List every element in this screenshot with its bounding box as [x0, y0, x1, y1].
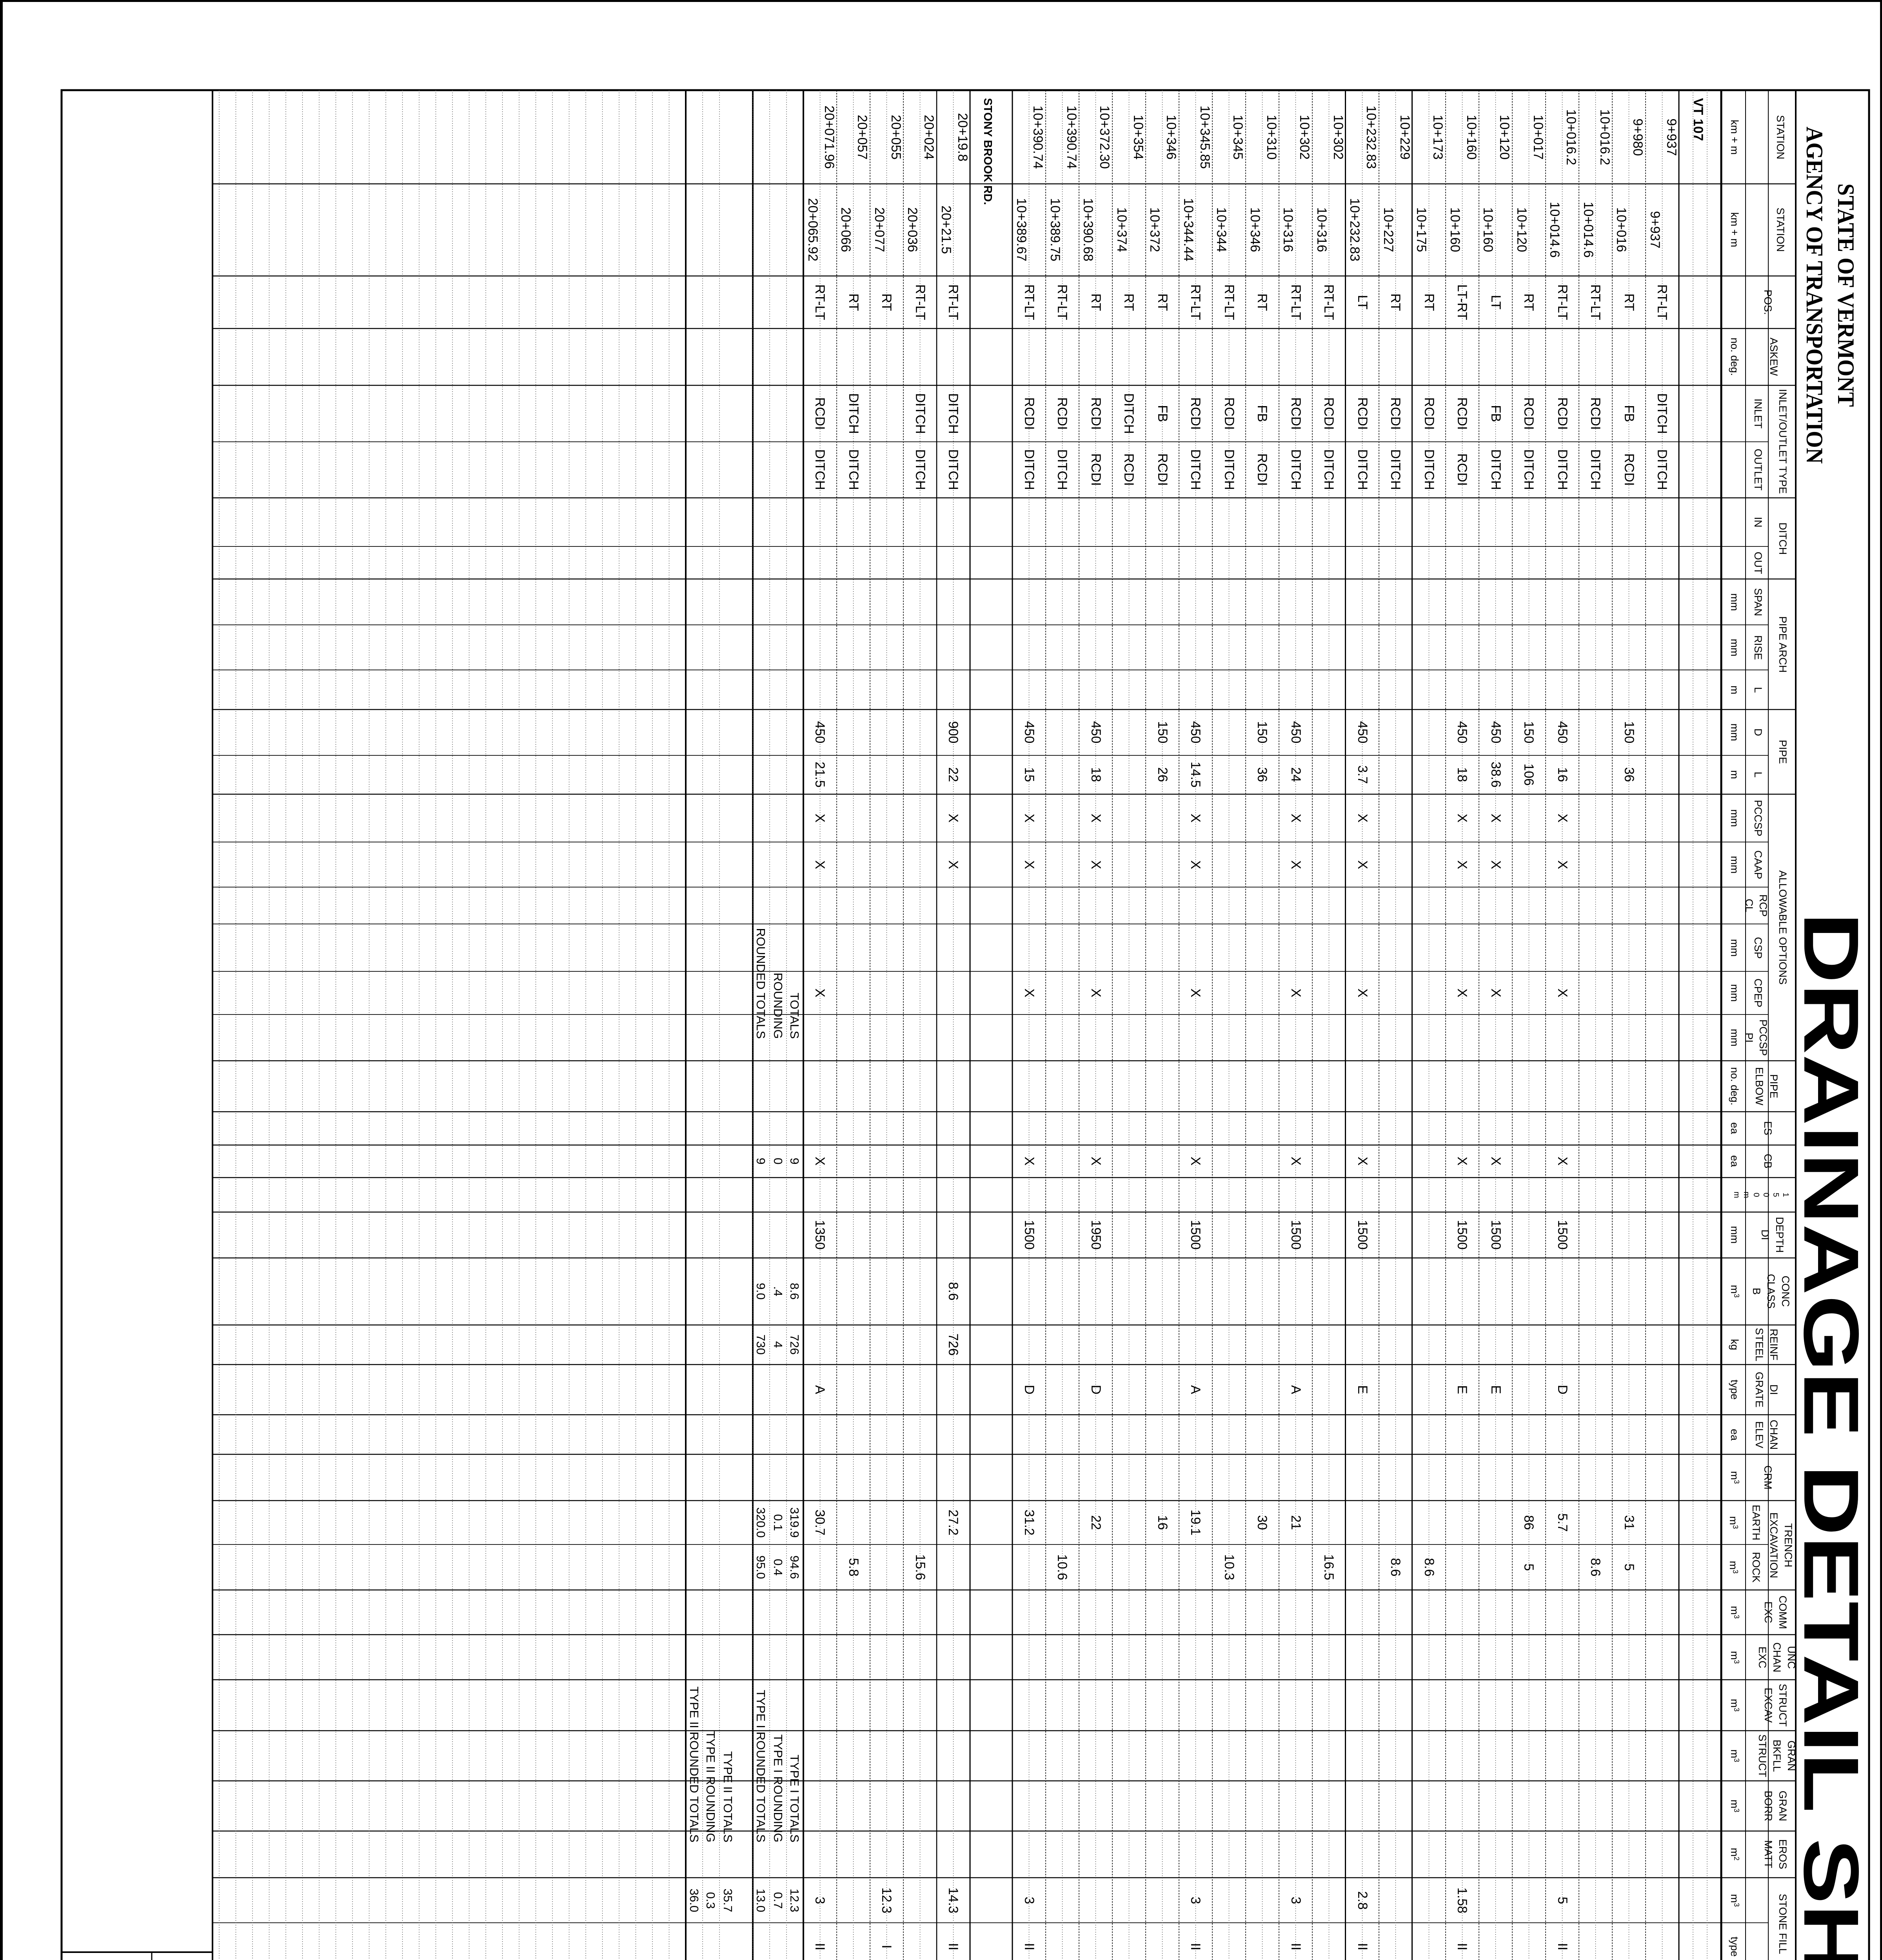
svg-text:A: A	[812, 1385, 827, 1394]
svg-text:X: X	[1555, 1157, 1570, 1166]
svg-text:STRUCT: STRUCT	[1757, 1734, 1768, 1777]
svg-text:RCDI: RCDI	[1355, 397, 1370, 430]
svg-text:m: m	[1732, 1192, 1741, 1198]
svg-text:CLASS: CLASS	[1765, 1274, 1777, 1309]
svg-text:X: X	[1488, 989, 1503, 998]
svg-text:RT-LT: RT-LT	[1288, 284, 1303, 320]
svg-text:RCP: RCP	[1757, 894, 1769, 916]
svg-text:RT-LT: RT-LT	[946, 284, 961, 320]
svg-text:II: II	[1288, 1943, 1303, 1951]
svg-text:II: II	[1555, 1943, 1570, 1951]
svg-text:3: 3	[812, 1897, 827, 1904]
svg-text:E: E	[1355, 1385, 1370, 1394]
svg-text:RT-LT: RT-LT	[1188, 284, 1203, 320]
svg-text:SPAN: SPAN	[1752, 588, 1764, 616]
svg-text:DITCH: DITCH	[1055, 449, 1070, 490]
svg-text:X: X	[1188, 860, 1203, 869]
svg-text:86: 86	[1521, 1515, 1536, 1530]
svg-text:5: 5	[1771, 1192, 1780, 1197]
svg-text:STATION: STATION	[1775, 208, 1786, 252]
svg-text:GRAN: GRAN	[1786, 1740, 1797, 1771]
svg-text:ROCK: ROCK	[1750, 1552, 1762, 1583]
svg-text:mm: mm	[1729, 939, 1740, 957]
svg-text:730: 730	[754, 1334, 768, 1355]
svg-text:DITCH: DITCH	[846, 393, 861, 434]
svg-text:726: 726	[946, 1334, 961, 1356]
svg-text:10+310: 10+310	[1264, 115, 1279, 160]
svg-text:DEPTH: DEPTH	[1774, 1217, 1786, 1253]
svg-text:I: I	[879, 1945, 894, 1948]
svg-text:19.1: 19.1	[1188, 1510, 1203, 1535]
svg-text:10+389.75: 10+389.75	[1048, 198, 1063, 261]
svg-text:RCDI: RCDI	[1455, 453, 1470, 486]
svg-text:RCDI: RCDI	[1521, 397, 1536, 430]
svg-text:10+160: 10+160	[1464, 115, 1479, 160]
svg-text:EXCAVATION: EXCAVATION	[1768, 1512, 1780, 1578]
svg-text:RCDI: RCDI	[1222, 397, 1237, 430]
svg-text:4: 4	[771, 1341, 785, 1348]
svg-text:15: 15	[1022, 767, 1037, 782]
svg-text:X: X	[812, 814, 827, 823]
svg-text:X: X	[812, 860, 827, 869]
svg-text:36.0: 36.0	[687, 1889, 701, 1912]
svg-text:1: 1	[1781, 1192, 1790, 1197]
svg-text:150: 150	[1622, 721, 1637, 744]
svg-text:ELEV: ELEV	[1753, 1421, 1765, 1448]
svg-text:38.6: 38.6	[1488, 762, 1503, 788]
svg-text:95.0: 95.0	[754, 1555, 768, 1579]
svg-text:mm: mm	[1729, 809, 1740, 827]
svg-text:RT: RT	[1155, 294, 1170, 311]
svg-text:X: X	[1188, 1157, 1203, 1166]
svg-text:TYPE II ROUNDING: TYPE II ROUNDING	[704, 1731, 718, 1842]
svg-text:RT-LT: RT-LT	[812, 284, 827, 320]
svg-text:RCDI: RCDI	[1188, 397, 1203, 430]
svg-text:D: D	[1555, 1385, 1570, 1395]
svg-text:X: X	[1088, 860, 1103, 869]
svg-text:X: X	[1555, 860, 1570, 869]
svg-text:INLET/OUTLET TYPE: INLET/OUTLET TYPE	[1777, 389, 1789, 494]
svg-text:450: 450	[1455, 721, 1470, 744]
svg-text:31: 31	[1622, 1515, 1637, 1530]
svg-text:1500: 1500	[1188, 1220, 1203, 1250]
svg-text:20+19.8: 20+19.8	[955, 113, 970, 162]
svg-text:TYPE I ROUNDED TOTALS: TYPE I ROUNDED TOTALS	[754, 1690, 768, 1842]
svg-text:CAAP: CAAP	[1752, 850, 1764, 879]
svg-text:16: 16	[1555, 767, 1570, 782]
svg-text:X: X	[946, 814, 961, 823]
svg-text:DITCH: DITCH	[812, 449, 827, 490]
svg-text:8.6: 8.6	[788, 1283, 801, 1299]
svg-text:X: X	[1288, 860, 1303, 869]
svg-text:RT-LT: RT-LT	[1222, 284, 1237, 320]
svg-text:1500: 1500	[1555, 1220, 1570, 1250]
svg-text:RCDI: RCDI	[812, 397, 827, 430]
svg-text:FB: FB	[1255, 405, 1270, 422]
svg-text:450: 450	[1088, 721, 1103, 744]
svg-text:DITCH: DITCH	[1422, 449, 1437, 490]
svg-text:18: 18	[1088, 767, 1103, 782]
svg-text:DITCH: DITCH	[1022, 449, 1037, 490]
svg-text:900: 900	[946, 721, 961, 744]
svg-text:1500: 1500	[1455, 1220, 1470, 1250]
svg-text:X: X	[1455, 989, 1470, 998]
svg-text:10+390.74: 10+390.74	[1030, 105, 1045, 169]
svg-text:X: X	[1355, 814, 1370, 823]
svg-text:ea: ea	[1729, 1429, 1740, 1441]
svg-text:16: 16	[1155, 1515, 1170, 1530]
svg-text:X: X	[1555, 989, 1570, 998]
svg-text:5: 5	[1622, 1564, 1637, 1571]
svg-text:RCDI: RCDI	[1455, 397, 1470, 430]
svg-text:OUT: OUT	[1752, 552, 1764, 574]
svg-text:STEEL: STEEL	[1753, 1328, 1765, 1361]
svg-text:X: X	[1555, 814, 1570, 823]
svg-text:GRAN: GRAN	[1777, 1791, 1789, 1821]
svg-text:0: 0	[1762, 1192, 1770, 1197]
svg-text:150: 150	[1521, 721, 1536, 744]
svg-text:X: X	[1088, 814, 1103, 823]
svg-text:mm: mm	[1729, 593, 1740, 611]
svg-text:ROUNDING: ROUNDING	[771, 973, 785, 1039]
svg-text:DI: DI	[1759, 1230, 1771, 1240]
svg-text:5.8: 5.8	[846, 1558, 861, 1576]
svg-text:A: A	[1188, 1385, 1203, 1394]
svg-text:PIPE: PIPE	[1768, 1074, 1780, 1098]
svg-text:X: X	[1355, 1157, 1370, 1166]
svg-text:21.5: 21.5	[812, 762, 827, 788]
svg-text:DITCH: DITCH	[946, 449, 961, 490]
svg-text:9: 9	[788, 1158, 801, 1164]
svg-text:D: D	[1752, 728, 1764, 736]
svg-text:RT: RT	[846, 294, 861, 311]
svg-text:DITCH: DITCH	[1488, 449, 1503, 490]
svg-text:27.2: 27.2	[946, 1510, 961, 1535]
svg-text:9+980: 9+980	[1630, 118, 1645, 156]
svg-text:L: L	[1752, 771, 1764, 777]
svg-text:km + m: km + m	[1729, 120, 1740, 154]
svg-text:106: 106	[1521, 764, 1536, 786]
svg-text:RCDI: RCDI	[1022, 397, 1037, 430]
svg-text:10+016.2: 10+016.2	[1597, 109, 1612, 165]
svg-text:RCDI: RCDI	[1288, 397, 1303, 430]
svg-text:EARTH: EARTH	[1750, 1504, 1762, 1540]
svg-text:EXC: EXC	[1757, 1646, 1768, 1668]
svg-text:m: m	[1729, 770, 1740, 779]
svg-text:450: 450	[1488, 721, 1503, 744]
svg-text:DITCH: DITCH	[1121, 393, 1136, 434]
svg-text:15.6: 15.6	[913, 1554, 928, 1580]
svg-text:GRATE: GRATE	[1753, 1372, 1765, 1407]
svg-text:10+344: 10+344	[1214, 207, 1229, 252]
svg-text:9+937: 9+937	[1648, 211, 1662, 249]
svg-text:3.7: 3.7	[1355, 765, 1370, 784]
svg-text:5.7: 5.7	[1555, 1513, 1570, 1532]
svg-text:PCCSP: PCCSP	[1757, 1019, 1769, 1056]
svg-text:RT-LT: RT-LT	[1588, 284, 1603, 320]
svg-text:A: A	[1288, 1385, 1303, 1394]
svg-text:X: X	[1455, 814, 1470, 823]
svg-text:X: X	[1288, 989, 1303, 998]
svg-text:450: 450	[1188, 721, 1203, 744]
svg-text:PIPE: PIPE	[1777, 740, 1789, 764]
svg-text:16.5: 16.5	[1321, 1554, 1336, 1580]
svg-text:DITCH: DITCH	[1355, 449, 1370, 490]
svg-text:14.5: 14.5	[1188, 762, 1203, 788]
svg-text:10.3: 10.3	[1222, 1554, 1237, 1580]
svg-text:EROS: EROS	[1777, 1839, 1789, 1869]
svg-text:X: X	[1022, 989, 1037, 998]
svg-text:3: 3	[1022, 1897, 1037, 1904]
svg-text:10+344.44: 10+344.44	[1181, 198, 1196, 261]
svg-text:1350: 1350	[812, 1220, 827, 1250]
svg-text:20+077: 20+077	[872, 207, 887, 252]
svg-text:10+229: 10+229	[1397, 115, 1412, 160]
svg-text:mm: mm	[1729, 724, 1740, 741]
svg-text:10+175: 10+175	[1414, 207, 1429, 252]
svg-text:DITCH: DITCH	[1655, 393, 1669, 434]
svg-text:kg: kg	[1729, 1339, 1740, 1350]
svg-text:12.3: 12.3	[879, 1887, 894, 1913]
svg-text:mm: mm	[1729, 1029, 1740, 1047]
svg-text:10+316: 10+316	[1281, 207, 1295, 252]
svg-text:10+232.83: 10+232.83	[1347, 198, 1362, 261]
svg-text:RT-LT: RT-LT	[1655, 284, 1669, 320]
svg-text:RCDI: RCDI	[1088, 453, 1103, 486]
svg-text:STATION: STATION	[1775, 115, 1786, 160]
svg-text:RCDI: RCDI	[1622, 453, 1637, 486]
svg-text:8.6: 8.6	[946, 1282, 961, 1300]
svg-text:0: 0	[1752, 1192, 1760, 1197]
svg-text:RT-LT: RT-LT	[1022, 284, 1037, 320]
svg-text:ES: ES	[1762, 1121, 1774, 1135]
svg-text:X: X	[1188, 814, 1203, 823]
svg-text:L: L	[1752, 687, 1764, 693]
svg-text:10+374: 10+374	[1114, 207, 1129, 252]
svg-text:type: type	[1729, 1936, 1740, 1956]
svg-text:CHAN: CHAN	[1768, 1420, 1780, 1450]
svg-text:no. deg.: no. deg.	[1729, 1067, 1740, 1105]
svg-text:726: 726	[788, 1334, 801, 1355]
svg-text:ALLOWABLE OPTIONS: ALLOWABLE OPTIONS	[1777, 870, 1789, 985]
svg-text:RCDI: RCDI	[1255, 453, 1270, 486]
svg-text:FB: FB	[1155, 405, 1170, 422]
svg-text:MATT: MATT	[1762, 1840, 1774, 1868]
svg-text:DITCH: DITCH	[1555, 449, 1570, 490]
svg-text:X: X	[1355, 860, 1370, 869]
svg-text:CPEP: CPEP	[1752, 978, 1764, 1007]
svg-text:450: 450	[812, 721, 827, 744]
svg-text:10+017: 10+017	[1531, 115, 1546, 160]
svg-text:CONC: CONC	[1780, 1276, 1791, 1307]
svg-text:21: 21	[1288, 1515, 1303, 1530]
svg-text:RT-LT: RT-LT	[1321, 284, 1336, 320]
svg-text:10+014.6: 10+014.6	[1581, 202, 1596, 258]
svg-text:20+055: 20+055	[888, 115, 903, 160]
svg-text:10+232.83: 10+232.83	[1364, 105, 1379, 169]
svg-text:CRM: CRM	[1762, 1465, 1774, 1490]
svg-text:II: II	[1022, 1943, 1037, 1951]
svg-text:20+057: 20+057	[855, 115, 870, 160]
svg-text:TYPE I TOTALS: TYPE I TOTALS	[788, 1755, 801, 1842]
svg-text:RCDI: RCDI	[1555, 397, 1570, 430]
svg-text:LT-RT: LT-RT	[1455, 284, 1470, 320]
svg-text:X: X	[1088, 989, 1103, 998]
svg-text:36: 36	[1255, 767, 1270, 782]
svg-text:22: 22	[946, 767, 961, 782]
svg-text:DITCH: DITCH	[913, 449, 928, 490]
svg-text:RISE: RISE	[1752, 635, 1764, 660]
svg-text:10+160: 10+160	[1448, 207, 1462, 252]
svg-text:20+066: 20+066	[838, 207, 853, 252]
svg-text:DITCH: DITCH	[1321, 449, 1336, 490]
svg-text:1500: 1500	[1488, 1220, 1503, 1250]
svg-text:X: X	[1022, 814, 1037, 823]
svg-text:II: II	[1455, 1943, 1470, 1951]
svg-text:ROUNDED TOTALS: ROUNDED TOTALS	[754, 928, 768, 1039]
svg-text:RCDI: RCDI	[1155, 453, 1170, 486]
svg-text:150: 150	[1255, 721, 1270, 744]
svg-text:31.2: 31.2	[1022, 1510, 1037, 1535]
svg-text:10+345.85: 10+345.85	[1197, 105, 1212, 169]
svg-text:X: X	[1455, 860, 1470, 869]
svg-text:13.0: 13.0	[754, 1889, 768, 1912]
svg-text:10+345: 10+345	[1230, 115, 1245, 160]
svg-text:320.0: 320.0	[754, 1507, 768, 1538]
svg-text:8.6: 8.6	[1588, 1558, 1603, 1576]
svg-text:10+316: 10+316	[1314, 207, 1329, 252]
svg-text:450: 450	[1022, 721, 1037, 744]
svg-text:DRAINAGE DETAIL SHEET: DRAINAGE DETAIL SHEET	[1788, 912, 1875, 1960]
svg-text:10+354: 10+354	[1131, 115, 1146, 160]
svg-text:BORR: BORR	[1762, 1791, 1774, 1821]
svg-text:10+346: 10+346	[1248, 207, 1263, 252]
svg-text:5: 5	[1555, 1897, 1570, 1904]
svg-text:10+372: 10+372	[1147, 207, 1162, 252]
svg-text:0.1: 0.1	[771, 1514, 785, 1531]
svg-text:20+036: 20+036	[905, 207, 920, 252]
svg-text:km + m: km + m	[1729, 212, 1740, 247]
svg-text:RCDI: RCDI	[1321, 397, 1336, 430]
svg-text:10+120: 10+120	[1514, 207, 1529, 252]
svg-text:RT: RT	[1388, 294, 1403, 311]
svg-text:0.4: 0.4	[771, 1559, 785, 1575]
svg-text:10.6: 10.6	[1055, 1554, 1070, 1580]
svg-text:POS.: POS.	[1762, 290, 1774, 315]
svg-text:450: 450	[1355, 721, 1370, 744]
svg-text:D: D	[1088, 1385, 1103, 1395]
svg-text:X: X	[1188, 989, 1203, 998]
svg-text:TOTALS: TOTALS	[788, 993, 801, 1039]
svg-text:m: m	[1742, 1192, 1751, 1198]
svg-text:20+071.96: 20+071.96	[822, 105, 837, 169]
svg-text:RT: RT	[1121, 294, 1136, 311]
svg-text:X: X	[1355, 989, 1370, 998]
svg-text:X: X	[1022, 1157, 1037, 1166]
svg-text:UNC: UNC	[1786, 1646, 1797, 1669]
svg-text:TRENCH: TRENCH	[1782, 1523, 1794, 1568]
svg-text:10+160: 10+160	[1481, 207, 1495, 252]
svg-text:22: 22	[1088, 1515, 1103, 1530]
svg-text:3: 3	[1288, 1897, 1303, 1904]
svg-text:BKFLL: BKFLL	[1771, 1740, 1783, 1772]
svg-text:CSP: CSP	[1752, 937, 1764, 959]
svg-text:9: 9	[754, 1158, 768, 1164]
svg-text:TYPE I ROUNDING: TYPE I ROUNDING	[771, 1734, 785, 1842]
svg-text:LT: LT	[1355, 295, 1370, 309]
svg-text:II: II	[946, 1943, 961, 1951]
svg-text:no. deg.: no. deg.	[1729, 338, 1740, 376]
svg-text:II: II	[1355, 1943, 1370, 1951]
svg-text:STONE FILL: STONE FILL	[1777, 1894, 1789, 1954]
svg-text:ASKEW: ASKEW	[1768, 338, 1780, 376]
svg-text:X: X	[1088, 1157, 1103, 1166]
svg-text:RT: RT	[1521, 294, 1536, 311]
svg-text:18: 18	[1455, 767, 1470, 782]
svg-text:PCCSP: PCCSP	[1752, 800, 1764, 836]
svg-text:CL: CL	[1743, 899, 1755, 913]
svg-text:TYPE II TOTALS: TYPE II TOTALS	[721, 1751, 735, 1842]
svg-text:10+390.74: 10+390.74	[1064, 105, 1079, 169]
svg-text:10+302: 10+302	[1331, 115, 1346, 160]
svg-text:mm: mm	[1729, 856, 1740, 874]
svg-text:X: X	[1488, 1157, 1503, 1166]
svg-text:VT 107: VT 107	[1691, 98, 1706, 141]
svg-text:II: II	[812, 1943, 827, 1951]
svg-text:20+024: 20+024	[921, 115, 936, 160]
svg-text:STONY BROOK RD.: STONY BROOK RD.	[981, 98, 994, 205]
svg-text:INLET: INLET	[1752, 399, 1764, 429]
svg-text:0.3: 0.3	[704, 1892, 718, 1909]
svg-text:DITCH: DITCH	[1777, 523, 1789, 555]
svg-text:X: X	[1488, 814, 1503, 823]
svg-text:319.9: 319.9	[788, 1507, 801, 1538]
svg-text:TYPE II ROUNDED TOTALS: TYPE II ROUNDED TOTALS	[687, 1686, 701, 1842]
svg-text:26: 26	[1155, 767, 1170, 782]
svg-text:0: 0	[771, 1158, 785, 1164]
svg-text:PIPE ARCH: PIPE ARCH	[1777, 616, 1789, 673]
svg-text:DITCH: DITCH	[1288, 449, 1303, 490]
svg-text:DI: DI	[1768, 1385, 1780, 1395]
svg-text:RCDI: RCDI	[1088, 397, 1103, 430]
svg-text:1500: 1500	[1022, 1220, 1037, 1250]
svg-text:8.6: 8.6	[1388, 1558, 1403, 1576]
svg-text:RCDI: RCDI	[1588, 397, 1603, 430]
svg-text:E: E	[1455, 1385, 1470, 1394]
svg-text:10+227: 10+227	[1381, 207, 1396, 252]
svg-text:PI: PI	[1743, 1033, 1755, 1043]
svg-text:150: 150	[1155, 721, 1170, 744]
svg-text:DITCH: DITCH	[946, 393, 961, 434]
svg-text:X: X	[812, 1157, 827, 1166]
svg-text:12.3: 12.3	[788, 1889, 801, 1912]
svg-text:3: 3	[1188, 1897, 1203, 1904]
svg-text:FB: FB	[1622, 405, 1637, 422]
svg-text:10+372.30: 10+372.30	[1097, 105, 1112, 169]
svg-text:COMM: COMM	[1777, 1595, 1789, 1629]
svg-text:450: 450	[1555, 721, 1570, 744]
svg-text:1500: 1500	[1355, 1220, 1370, 1250]
svg-text:RT: RT	[1255, 294, 1270, 311]
svg-text:X: X	[1455, 1157, 1470, 1166]
svg-text:1950: 1950	[1088, 1220, 1103, 1250]
svg-text:10+014.6: 10+014.6	[1547, 202, 1562, 258]
svg-text:10+390.68: 10+390.68	[1081, 198, 1095, 261]
svg-text:9+937: 9+937	[1664, 118, 1679, 156]
svg-text:10+346: 10+346	[1164, 115, 1179, 160]
svg-text:ELBOW: ELBOW	[1753, 1067, 1765, 1105]
svg-text:RCDI: RCDI	[1388, 397, 1403, 430]
